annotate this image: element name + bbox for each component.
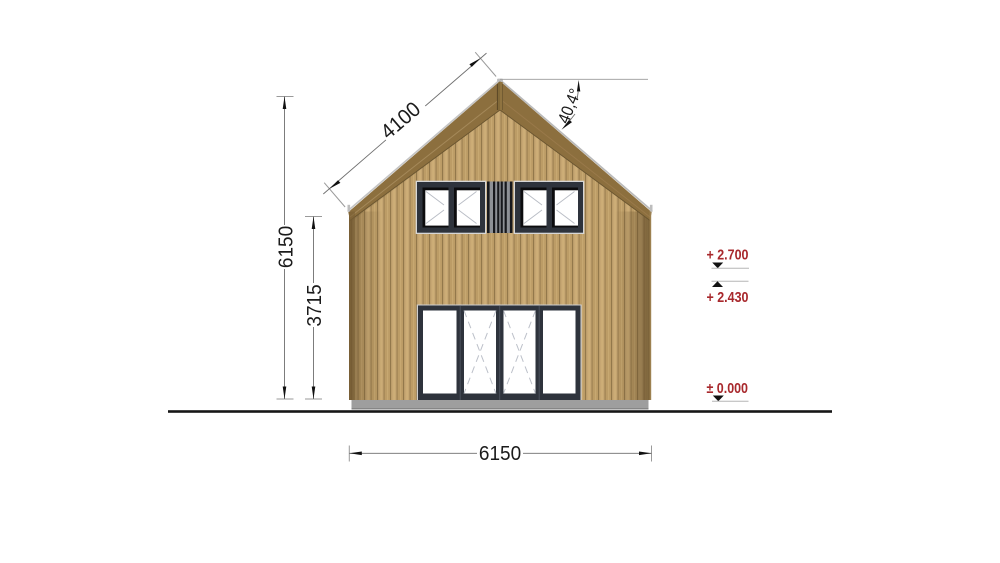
svg-text:6150: 6150 xyxy=(479,443,521,466)
svg-text:± 0.000: ± 0.000 xyxy=(707,380,748,396)
svg-text:3715: 3715 xyxy=(303,284,326,326)
svg-text:+ 2.700: + 2.700 xyxy=(707,247,749,263)
svg-text:+ 2.430: + 2.430 xyxy=(707,289,749,305)
svg-text:6150: 6150 xyxy=(275,226,298,268)
